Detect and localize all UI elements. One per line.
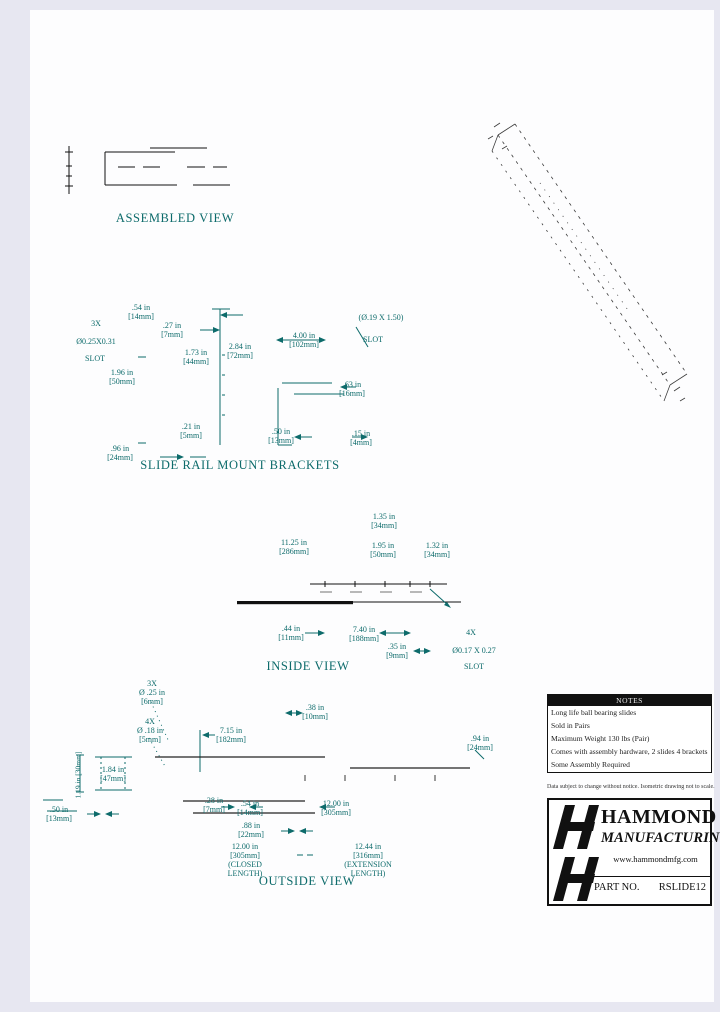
assembled-view-title: ASSEMBLED VIEW [116, 211, 234, 226]
dim-outside-184: 1.84 in [47mm] [100, 765, 126, 783]
dim-outside-1200: 12.00 in [305mm] [321, 799, 351, 817]
dim-bracket-54: .54 in [14mm] [128, 303, 154, 321]
dim-inside-4x: 4X [466, 628, 476, 637]
dim-bracket-slot019: (Ø.19 X 1.50) [359, 313, 404, 322]
notes-line-3: Maximum Weight 130 lbs (Pair) [548, 732, 711, 745]
company-name-line2: MANUFACTURINGLTD. [601, 830, 710, 847]
dim-bracket-173: 1.73 in [44mm] [183, 348, 209, 366]
dim-inside-740: 7.40 in [188mm] [349, 625, 379, 643]
dim-inside-132: 1.32 in [34mm] [424, 541, 450, 559]
dim-bracket-196: 1.96 in [50mm] [109, 368, 135, 386]
dim-inside-slot017-word: SLOT [464, 662, 484, 671]
dim-bracket-50: .50 in [13mm] [268, 427, 294, 445]
dim-bracket-slot019-word: SLOT [363, 335, 383, 344]
dim-bracket-96: .96 in [24mm] [107, 444, 133, 462]
dim-bracket-27: .27 in [7mm] [161, 321, 183, 339]
dim-outside-50: .50 in [13mm] [46, 805, 72, 823]
dim-outside-94: .94 in [24mm] [467, 734, 493, 752]
part-number-row: PART NO. RSLIDE12 [594, 882, 706, 893]
outside-view-title: OUTSIDE VIEW [259, 874, 355, 889]
company-name-line1: HAMMOND [601, 806, 710, 829]
part-number-label: PART NO. [594, 882, 639, 893]
brackets-view-title: SLIDE RAIL MOUNT BRACKETS [140, 458, 339, 473]
dim-bracket-284: 2.84 in [72mm] [227, 342, 253, 360]
dim-outside-38: .38 in [10mm] [302, 703, 328, 721]
dim-bracket-3x: 3X [91, 319, 101, 328]
dim-bracket-21: .21 in [5mm] [180, 422, 202, 440]
drawing-sheet: ASSEMBLED VIEW [0, 0, 720, 1012]
notes-line-2: Sold in Pairs [548, 719, 711, 732]
dim-outside-28: .28 in [7mm] [203, 796, 225, 814]
notes-line-1: Long life ball bearing slides [548, 706, 711, 719]
outside-view-drawing [35, 680, 500, 895]
notes-line-4: Comes with assembly hardware, 2 slides 4… [548, 745, 711, 758]
dim-outside-715: 7.15 in [182mm] [216, 726, 246, 744]
dim-inside-195: 1.95 in [50mm] [370, 541, 396, 559]
dim-outside-119-vertical: 1.19 in [30mm] [74, 752, 83, 799]
part-number-value: RSLIDE12 [659, 882, 706, 893]
notes-line-5: Some Assembly Required [548, 758, 711, 771]
disclaimer-text: Data subject to change without notice. I… [547, 784, 715, 790]
company-website: www.hammondmfg.com [601, 854, 710, 864]
inside-view-title: INSIDE VIEW [266, 659, 349, 674]
dim-outside-4x-holes: 4X Ø .18 in [5mm] [137, 717, 163, 744]
dim-bracket-15: .15 in [4mm] [350, 429, 372, 447]
dim-bracket-63: .63 in [16mm] [339, 380, 365, 398]
notes-box: NOTES Long life ball bearing slides Sold… [547, 694, 712, 773]
company-name-manufacturing: MANUFACTURING [601, 830, 720, 846]
title-block: HAMMOND MANUFACTURINGLTD. www.hammondmfg… [547, 798, 712, 906]
dim-inside-slot017: Ø0.17 X 0.27 [452, 646, 496, 655]
dim-bracket-slot025: Ø0.25X0.31 [76, 337, 116, 346]
dim-bracket-slot025-word: SLOT [85, 354, 105, 363]
dim-inside-135: 1.35 in [34mm] [371, 512, 397, 530]
dim-outside-3x-holes: 3X Ø .25 in [6mm] [139, 679, 165, 706]
notes-title: NOTES [548, 695, 711, 706]
dim-inside-35: .35 in [9mm] [386, 642, 408, 660]
isometric-drawing [478, 105, 718, 415]
dim-inside-1125: 11.25 in [286mm] [279, 538, 309, 556]
dim-inside-44: .44 in [11mm] [278, 624, 303, 642]
dim-outside-extension-length: 12.44 in [316mm] (EXTENSION LENGTH) [344, 842, 392, 878]
dim-bracket-400: 4.00 in [102mm] [289, 331, 319, 349]
dim-outside-88: .88 in [22mm] [238, 821, 264, 839]
assembled-view-drawing [55, 140, 305, 215]
dim-outside-54: .54 in [14mm] [237, 799, 263, 817]
dim-outside-closed-length: 12.00 in [305mm] (CLOSED LENGTH) [228, 842, 263, 878]
title-block-divider [589, 876, 710, 877]
